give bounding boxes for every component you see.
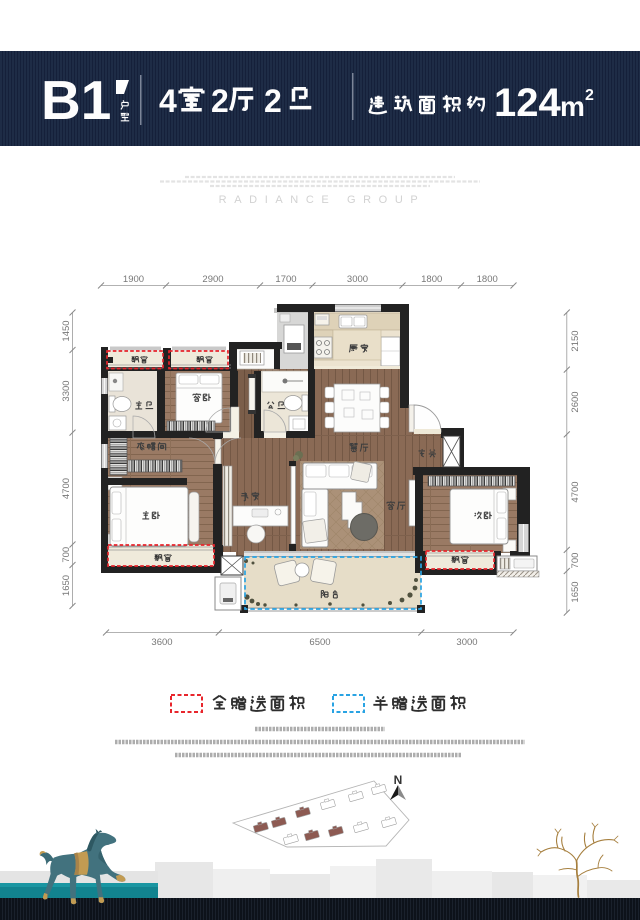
svg-text:6500: 6500 <box>309 637 330 648</box>
svg-text:2600: 2600 <box>570 391 581 412</box>
svg-text:4: 4 <box>159 83 177 119</box>
svg-text:1800: 1800 <box>421 274 442 285</box>
svg-text:N: N <box>394 773 403 787</box>
svg-text:700: 700 <box>570 553 581 569</box>
svg-text:700: 700 <box>61 547 72 563</box>
svg-text:1900: 1900 <box>123 274 144 285</box>
svg-text:1800: 1800 <box>477 274 498 285</box>
svg-text:1650: 1650 <box>570 581 581 602</box>
svg-text:2: 2 <box>264 83 282 119</box>
svg-text:2: 2 <box>585 87 594 104</box>
svg-text:4700: 4700 <box>570 481 581 502</box>
svg-text:2: 2 <box>211 83 229 119</box>
svg-text:3300: 3300 <box>61 380 72 401</box>
svg-text:B1: B1 <box>41 69 111 131</box>
svg-text:3600: 3600 <box>151 637 172 648</box>
svg-text:3000: 3000 <box>347 274 368 285</box>
svg-text:2150: 2150 <box>570 330 581 351</box>
svg-text:4700: 4700 <box>61 478 72 499</box>
svg-text:1700: 1700 <box>275 274 296 285</box>
svg-text:1650: 1650 <box>61 575 72 596</box>
svg-text:m: m <box>560 91 585 122</box>
svg-text:RADIANCE GROUP: RADIANCE GROUP <box>219 194 426 206</box>
svg-text:124: 124 <box>494 81 561 125</box>
svg-text:1450: 1450 <box>61 320 72 341</box>
svg-text:2900: 2900 <box>202 274 223 285</box>
svg-text:3000: 3000 <box>456 637 477 648</box>
